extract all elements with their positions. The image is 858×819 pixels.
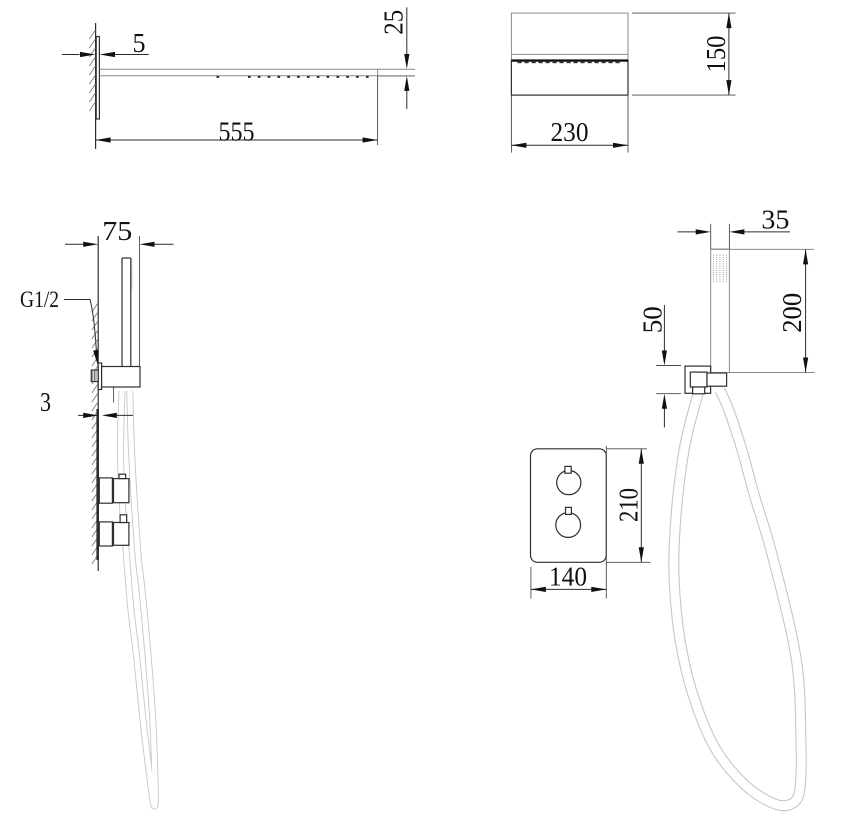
svg-text:50: 50 (638, 306, 668, 333)
svg-text:3: 3 (40, 387, 51, 417)
svg-text:G1/2: G1/2 (20, 287, 59, 312)
svg-text:5: 5 (133, 28, 146, 58)
svg-text:35: 35 (761, 205, 789, 235)
svg-text:555: 555 (219, 117, 255, 147)
svg-text:140: 140 (549, 562, 587, 592)
svg-text:210: 210 (614, 488, 644, 522)
svg-text:25: 25 (379, 10, 409, 35)
svg-text:150: 150 (701, 36, 731, 73)
svg-text:230: 230 (551, 117, 589, 147)
svg-text:200: 200 (777, 293, 807, 333)
svg-text:75: 75 (102, 216, 132, 246)
